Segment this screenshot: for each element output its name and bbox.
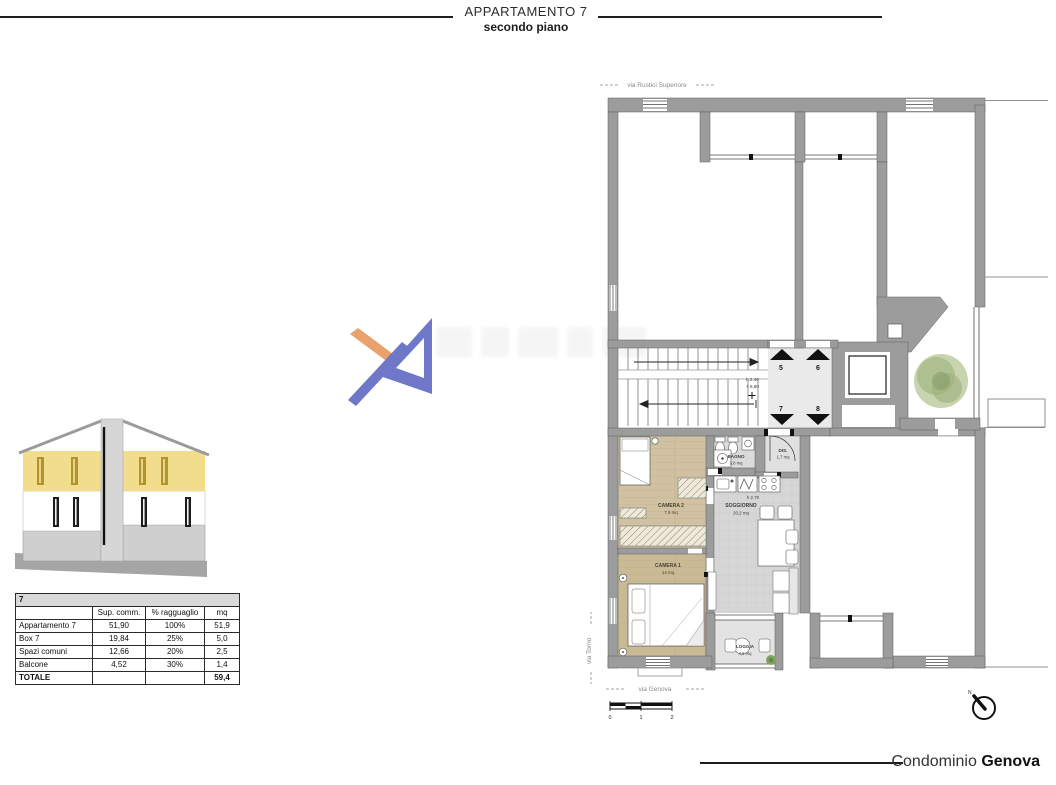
row-label: Appartamento 7 <box>16 620 93 633</box>
elevation-center-column <box>101 419 123 561</box>
table-unit-number: 7 <box>16 594 240 607</box>
scale-1: 1 <box>639 715 642 721</box>
dis-label: DIS. <box>779 448 788 453</box>
kitchen-units <box>714 476 780 492</box>
row-mq: 2,5 <box>205 646 240 659</box>
soggiorno-label: SOGGIORNO <box>725 503 757 509</box>
soggiorno-height: h 2.70 <box>747 495 760 500</box>
row-perc: 100% <box>146 620 205 633</box>
unit-5: 5 <box>779 365 783 372</box>
row-sup: 4,52 <box>93 659 146 672</box>
sofa <box>773 568 798 614</box>
cutoff-lines <box>985 101 1048 668</box>
camera1-area: 14 mq <box>662 570 675 575</box>
row-label: Spazi comuni <box>16 646 93 659</box>
scale-bar: 0 1 2 <box>608 701 673 721</box>
footer-project: Condominio Genova <box>891 753 1040 771</box>
unit-7: 7 <box>779 406 783 413</box>
camera1-furniture <box>619 574 704 656</box>
landing-height: h 2.40 <box>746 377 759 382</box>
compass-north: N <box>968 690 972 696</box>
total-label: TOTALE <box>16 672 93 685</box>
col-header-blank <box>16 607 93 620</box>
table-total-row: TOTALE 59,4 <box>16 672 240 685</box>
closet-strip <box>620 526 706 546</box>
small-balcony <box>638 668 682 676</box>
header-rule-left <box>0 16 453 18</box>
elevator <box>842 352 895 427</box>
landing-level: + 6,80 <box>746 384 759 389</box>
row-perc: 20% <box>146 646 205 659</box>
table-row: Spazi comuni 12,66 20% 2,5 <box>16 646 240 659</box>
row-sup: 19,84 <box>93 633 146 646</box>
row-mq: 5,0 <box>205 633 240 646</box>
col-header-sup: Sup. comm. <box>93 607 146 620</box>
footer-rule <box>700 762 903 764</box>
row-sup: 51,90 <box>93 620 146 633</box>
compass-icon: N <box>968 690 995 719</box>
row-label: Box 7 <box>16 633 93 646</box>
soggiorno-area: 20,2 mq <box>733 511 749 516</box>
dining-set <box>758 506 798 566</box>
apartment-title: APPARTAMENTO 7 <box>436 4 616 19</box>
row-perc: 25% <box>146 633 205 646</box>
row-label: Balcone <box>16 659 93 672</box>
elevation-left-wing <box>19 421 101 561</box>
row-mq: 51,9 <box>205 620 240 633</box>
cutoff-balcony <box>988 399 1045 427</box>
street-left: via Torno <box>586 637 593 664</box>
table-row: Appartamento 7 51,90 100% 51,9 <box>16 620 240 633</box>
elevation-right-wing <box>123 421 209 561</box>
bagno-label: BAGNO <box>727 454 745 459</box>
unit-8: 8 <box>816 406 820 413</box>
total-mq: 59,4 <box>205 672 240 685</box>
footer-name: Genova <box>981 753 1040 770</box>
street-top: via Rustici Superiore <box>627 82 687 89</box>
dresser <box>620 508 646 518</box>
wall-niche <box>888 324 902 338</box>
table-row: Box 7 19,84 25% 5,0 <box>16 633 240 646</box>
footer-label: Condominio <box>891 753 976 770</box>
table-row: Balcone 4,52 30% 1,4 <box>16 659 240 672</box>
courtyard-tree <box>914 354 968 408</box>
wardrobe <box>678 478 706 498</box>
loggia-label: LOGGIA <box>736 644 755 649</box>
scale-0: 0 <box>608 715 611 721</box>
row-perc: 30% <box>146 659 205 672</box>
floor-plan: 5 6 7 8 h 2.40 + 6,80 <box>572 62 1056 738</box>
sheet: APPARTAMENTO 7 secondo piano <box>0 0 1056 785</box>
camera2-area: 7,9 mq <box>664 510 678 515</box>
area-table: 7 Sup. comm. % ragguaglio mq Appartament… <box>15 593 240 685</box>
row-sup: 12,66 <box>93 646 146 659</box>
floor-subtitle: secondo piano <box>436 20 616 34</box>
row-mq: 1,4 <box>205 659 240 672</box>
page-title: APPARTAMENTO 7 secondo piano <box>436 4 616 34</box>
col-header-perc: % ragguaglio <box>146 607 205 620</box>
tv-cabinet <box>708 572 716 610</box>
camera1-label: CAMERA 1 <box>655 563 681 569</box>
dis-area: 1,7 mq <box>777 455 790 460</box>
loggia-area: 4,5 mq <box>739 651 752 656</box>
header-rule-right <box>598 16 882 18</box>
bagno-area: 3,8 mq <box>730 461 743 466</box>
building-elevation <box>15 413 215 578</box>
unit-6: 6 <box>816 365 820 372</box>
scale-2: 2 <box>670 715 673 721</box>
col-header-mq: mq <box>205 607 240 620</box>
level-cross-mark <box>749 392 756 399</box>
camera2-label: CAMERA 2 <box>658 503 684 509</box>
street-bottom: via Genova <box>639 686 672 693</box>
stair-direction-arrows <box>634 359 758 409</box>
